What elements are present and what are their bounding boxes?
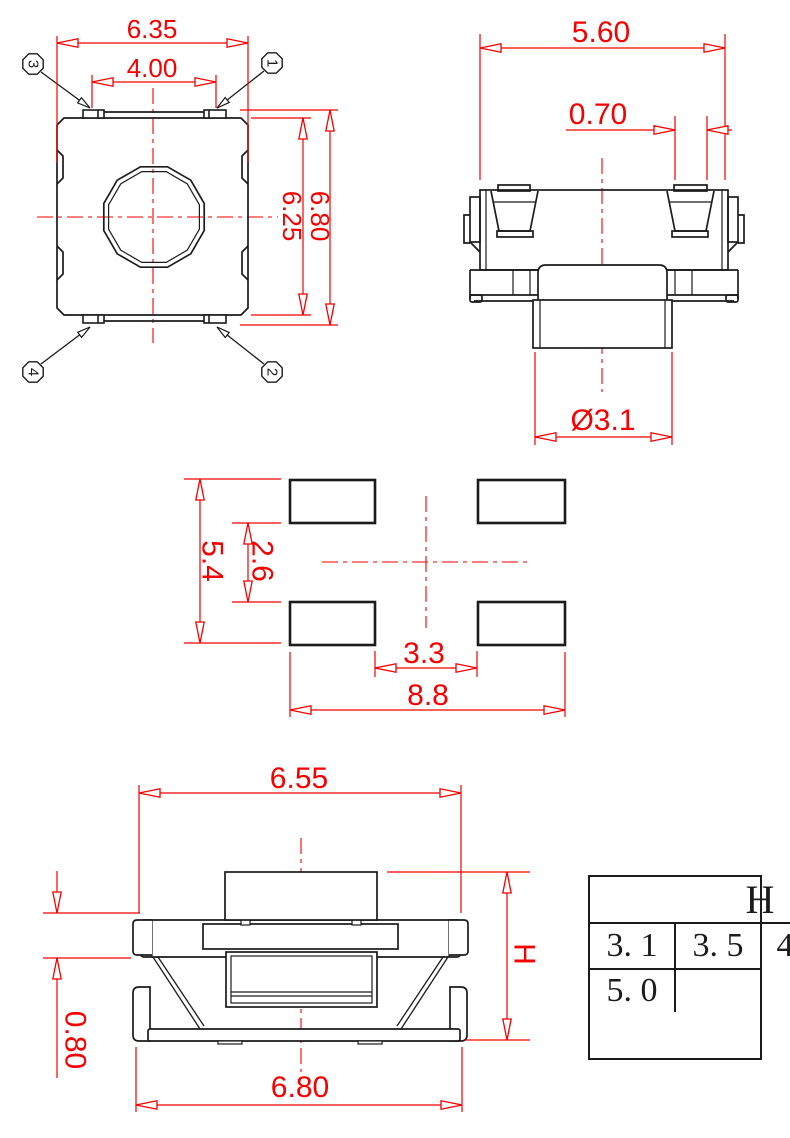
height-cell: 3. 1	[590, 922, 676, 968]
dim-stem-diameter: Ø3.1	[570, 404, 635, 437]
dim-front-top-width: 6.55	[270, 762, 328, 795]
dim-pad-gap-vertical: 2.6	[246, 540, 279, 582]
dim-front-bottom-width: 6.80	[271, 1071, 329, 1104]
front-view: 6.55 0.80 H 6.80	[43, 762, 541, 1112]
pad-bottom-left	[290, 602, 375, 645]
side-view: 5.60 0.70 Ø3.1	[464, 16, 744, 445]
height-table-header: H	[590, 877, 790, 922]
pad-top-left	[290, 480, 375, 523]
dim-pad-outer-horizontal: 8.8	[407, 679, 449, 712]
dim-pad-gap-horizontal: 3.3	[403, 637, 445, 670]
push-button	[225, 872, 377, 920]
dim-side-clip-width: 0.70	[569, 98, 627, 131]
dim-top-tab-span: 4.00	[127, 53, 178, 83]
height-cell: 5. 0	[590, 968, 676, 1012]
top-view-dim-lines	[57, 36, 338, 325]
pin-number-1: 1	[264, 59, 281, 67]
top-view: 3 1 4 2 6.35 4.00 6.25 6.80	[23, 14, 338, 382]
drawing-sheet: 3 1 4 2 6.35 4.00 6.25 6.80	[0, 0, 790, 1138]
dim-top-width: 6.35	[127, 14, 178, 44]
table-row: 5. 0	[590, 968, 760, 1012]
pad-bottom-right	[478, 602, 565, 645]
table-row: 3. 1 3. 5	[590, 922, 760, 968]
dim-side-width: 5.60	[572, 16, 630, 49]
dim-top-overall-height: 6.80	[305, 191, 335, 242]
dim-pad-outer-vertical: 5.4	[196, 540, 229, 582]
pin-number-4: 4	[25, 368, 42, 376]
plunger-stem	[533, 300, 672, 348]
table-row: 4. 3 4. 5	[760, 922, 790, 968]
dim-top-body-height: 6.25	[277, 191, 307, 242]
dim-foot-height: 0.80	[59, 1011, 92, 1069]
button-seat	[538, 265, 667, 300]
height-cell: 3. 5	[676, 922, 760, 968]
contact-window	[226, 952, 377, 1007]
dim-height-symbol: H	[508, 943, 541, 965]
side-view-dim-lines	[480, 34, 732, 445]
pin-number-3: 3	[25, 60, 42, 68]
height-cell	[676, 968, 760, 1012]
cover-strip	[203, 924, 398, 949]
pad-top-right	[478, 480, 565, 523]
pin-number-2: 2	[264, 368, 281, 376]
height-options-table: H 3. 1 3. 5 4. 3 4. 5 5. 0	[588, 875, 762, 1060]
top-view-centerlines	[37, 88, 278, 343]
land-pattern-view: 5.4 2.6 3.3 8.8	[184, 479, 565, 717]
height-cell: 4. 3	[760, 922, 790, 968]
base-plate	[148, 1029, 460, 1041]
